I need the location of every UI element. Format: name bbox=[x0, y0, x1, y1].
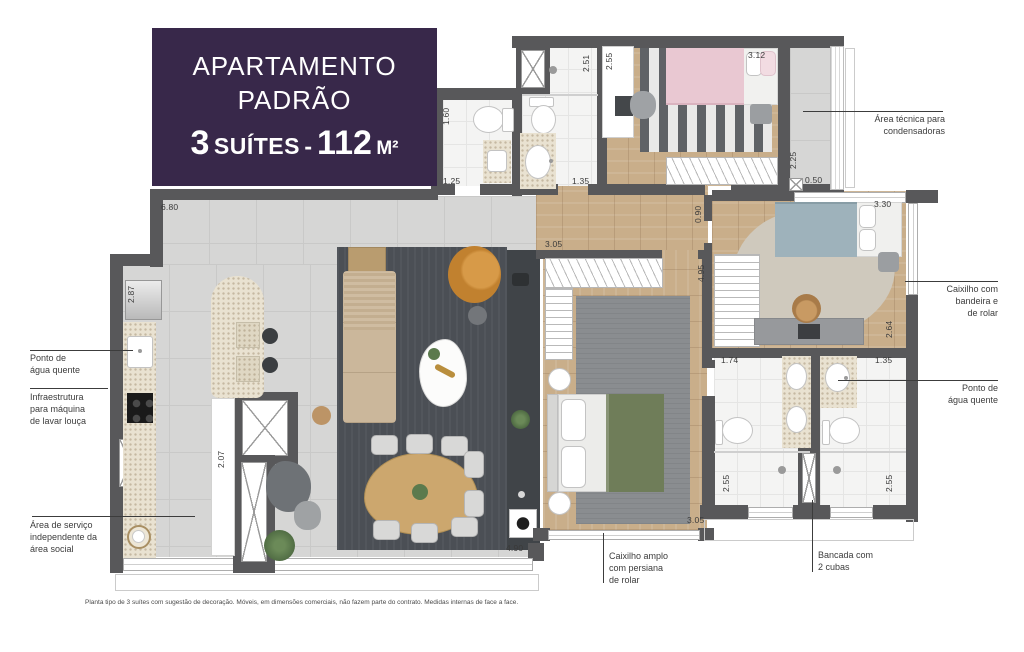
callout-infraestrutura: Infraestrutura para máquina de lavar lou… bbox=[30, 392, 86, 428]
island-sink-module bbox=[236, 322, 260, 348]
shower-head bbox=[833, 466, 841, 474]
leader-line bbox=[30, 350, 133, 351]
technical-area-louver bbox=[830, 46, 844, 190]
dining-chair bbox=[371, 435, 398, 455]
callout-area-servico: Área de serviço independente da área soc… bbox=[30, 520, 97, 556]
shower-head bbox=[778, 466, 786, 474]
window-master-suite bbox=[548, 530, 700, 540]
shower-head bbox=[549, 66, 557, 74]
cabinet-knob bbox=[518, 491, 525, 498]
suite2-pillow bbox=[859, 205, 876, 228]
callout-bancada: Bancada com 2 cubas bbox=[818, 550, 873, 574]
wall bbox=[906, 295, 918, 522]
pink-nightstand bbox=[750, 104, 772, 124]
master-wardrobe-left bbox=[545, 288, 573, 360]
pouf bbox=[312, 406, 331, 425]
leader-line bbox=[812, 500, 813, 572]
floor-plant bbox=[264, 530, 295, 561]
toilet-bowl bbox=[473, 106, 504, 133]
toilet-bowl bbox=[829, 417, 860, 444]
vanity-sink bbox=[786, 406, 807, 433]
suite2-nightstand bbox=[878, 252, 899, 272]
suite2-pillow bbox=[859, 229, 876, 251]
wall bbox=[712, 190, 794, 201]
sofa-chaise bbox=[344, 272, 395, 330]
sofa-side-table bbox=[348, 247, 386, 272]
dining-chair bbox=[406, 434, 433, 454]
balcony-sill bbox=[115, 574, 539, 591]
wall bbox=[873, 505, 918, 519]
hallway-floor bbox=[536, 186, 708, 252]
laundry-tub-basin bbox=[132, 530, 145, 543]
title-line2: PADRÃO bbox=[152, 84, 437, 118]
coffee-maker bbox=[512, 273, 529, 286]
technical-area-floor bbox=[790, 46, 830, 190]
master-nightstand bbox=[548, 492, 571, 515]
leader-line bbox=[32, 516, 195, 517]
master-pillow bbox=[561, 446, 586, 488]
leader-line bbox=[30, 388, 108, 389]
area-unit: M² bbox=[376, 138, 398, 159]
separator: - bbox=[304, 133, 312, 159]
wall bbox=[110, 254, 123, 573]
island-stool bbox=[262, 357, 278, 373]
dining-chair bbox=[373, 520, 400, 540]
dining-chair bbox=[464, 451, 484, 478]
dining-chair bbox=[451, 517, 478, 537]
balcony-sill bbox=[704, 519, 914, 541]
leader-line bbox=[905, 281, 998, 282]
bathroom2-sink bbox=[525, 145, 551, 179]
pink-pillow bbox=[760, 51, 776, 76]
callout-area-tecnica: Área técnica para condensadoras bbox=[845, 114, 945, 138]
island-cooktop-module bbox=[236, 356, 260, 382]
coffee-table-plant bbox=[428, 348, 440, 360]
kitchen-faucet bbox=[138, 349, 142, 353]
shower-partition bbox=[820, 451, 906, 453]
wall bbox=[778, 38, 790, 195]
master-wardrobe-top bbox=[545, 258, 663, 288]
title-line1: APARTAMENTO bbox=[152, 50, 437, 84]
dining-chair bbox=[411, 523, 438, 543]
suites-count: 3 bbox=[191, 124, 210, 162]
cabinet-plant bbox=[511, 410, 530, 429]
bathrooms-duct bbox=[802, 453, 816, 503]
wall bbox=[810, 356, 820, 450]
pink-wardrobe bbox=[666, 157, 778, 185]
suites-label: SUÍTES bbox=[214, 133, 300, 159]
cooktop bbox=[127, 393, 153, 423]
corridor-duct bbox=[789, 178, 803, 191]
wall bbox=[700, 505, 748, 519]
elevator-shaft bbox=[242, 400, 288, 456]
armchair-side-table bbox=[468, 306, 487, 325]
pink-bed-blanket bbox=[666, 48, 744, 105]
window-living-balcony bbox=[123, 558, 533, 571]
leader-line bbox=[603, 533, 604, 583]
wall bbox=[906, 190, 938, 203]
master-bed-blanket bbox=[606, 394, 664, 492]
media-cabinet bbox=[507, 250, 540, 550]
title-area-line: 3 SUÍTES - 112 M² bbox=[152, 124, 437, 163]
disclaimer-text: Planta tipo de 3 suítes com sugestão de … bbox=[85, 599, 518, 606]
wall bbox=[702, 360, 715, 368]
callout-caixilho-amplo: Caixilho amplo com persiana de rolar bbox=[609, 551, 668, 587]
suite2-desk-chair bbox=[792, 294, 821, 323]
wall bbox=[702, 250, 712, 360]
dining-chair bbox=[464, 490, 484, 517]
wall bbox=[588, 184, 705, 195]
callout-caixilho-bandeira: Caixilho com bandeira e de rolar bbox=[898, 284, 998, 320]
window-master-bathroom bbox=[748, 507, 793, 518]
island-stool bbox=[262, 328, 278, 344]
wall bbox=[704, 195, 712, 221]
floor-plan: APARTAMENTO PADRÃO 3 SUÍTES - 112 M² Áre… bbox=[0, 0, 1024, 652]
title-card: APARTAMENTO PADRÃO 3 SUÍTES - 112 M² bbox=[152, 28, 437, 186]
shower-partition bbox=[714, 451, 810, 453]
bathroom2-duct bbox=[521, 50, 545, 88]
master-pillow bbox=[561, 399, 586, 441]
shower-partition bbox=[522, 94, 598, 96]
callout-ponto-agua-direita: Ponto de água quente bbox=[898, 383, 998, 407]
leader-line bbox=[838, 380, 998, 381]
kitchen-cabinet-run bbox=[211, 398, 235, 556]
area-value: 112 bbox=[317, 124, 372, 162]
wall bbox=[512, 36, 844, 48]
vanity-sink bbox=[786, 363, 807, 390]
suite2-bed-blanket bbox=[775, 202, 857, 257]
master-nightstand bbox=[548, 368, 571, 391]
wall bbox=[431, 88, 521, 100]
window-suite2-bathroom bbox=[830, 507, 873, 518]
toilet-tank bbox=[502, 108, 514, 132]
callout-ponto-agua-esquerda: Ponto de água quente bbox=[30, 353, 80, 377]
pink-desk-chair bbox=[630, 91, 656, 119]
reading-pouf bbox=[294, 501, 321, 530]
suite2-laptop bbox=[798, 324, 820, 339]
toilet-bowl bbox=[722, 417, 753, 444]
leader-line bbox=[803, 111, 943, 112]
wall bbox=[152, 189, 438, 200]
fridge bbox=[125, 280, 162, 320]
dining-centerpiece bbox=[412, 484, 428, 500]
pink-desk bbox=[602, 46, 634, 138]
faucet bbox=[549, 159, 553, 163]
bathroom1-sink bbox=[487, 150, 507, 172]
toilet-bowl bbox=[531, 105, 556, 134]
master-bed-headboard bbox=[547, 394, 558, 492]
armchair bbox=[448, 246, 501, 303]
